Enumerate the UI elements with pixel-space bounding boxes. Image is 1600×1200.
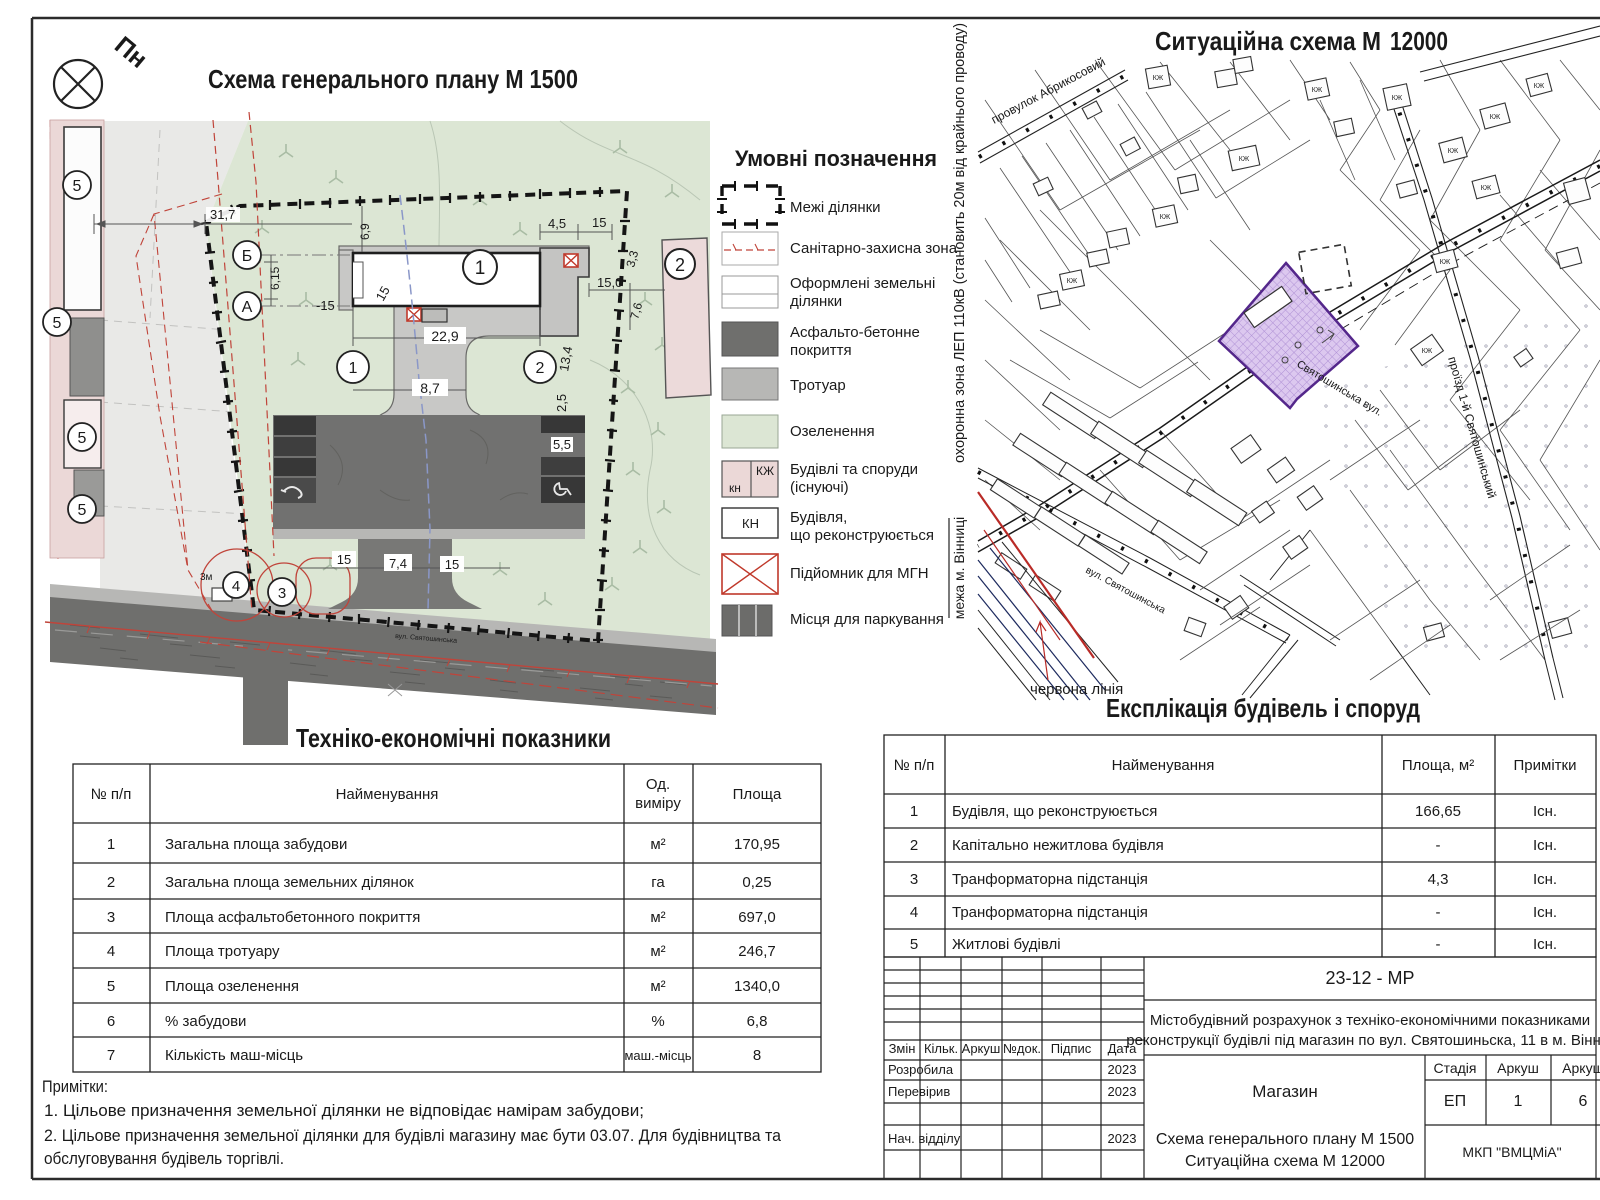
svg-text:8,7: 8,7 [420, 380, 440, 396]
svg-text:1: 1 [475, 258, 486, 279]
svg-text:що реконструюється: що реконструюється [790, 527, 934, 544]
svg-text:(існуючі): (існуючі) [790, 479, 849, 496]
svg-text:КЖ: КЖ [1422, 348, 1433, 355]
svg-text:Кільк.: Кільк. [924, 1041, 958, 1056]
svg-text:га: га [651, 874, 665, 891]
svg-text:22,9: 22,9 [431, 328, 458, 344]
svg-text:КЖ: КЖ [1160, 214, 1171, 221]
svg-text:Межі ділянки: Межі ділянки [790, 199, 881, 216]
svg-text:Будівля, що реконструюється: Будівля, що реконструюється [952, 803, 1157, 820]
svg-text:15: 15 [445, 557, 459, 572]
svg-text:м²: м² [650, 909, 665, 926]
svg-text:КЖ: КЖ [1448, 148, 1459, 155]
svg-text:-: - [1436, 837, 1441, 854]
svg-text:КЖ: КЖ [1440, 259, 1451, 266]
svg-text:маш.-місць: маш.-місць [624, 1048, 691, 1063]
svg-text:КЖ: КЖ [1067, 278, 1078, 285]
svg-text:Капітально нежитлова будівля: Капітально нежитлова будівля [952, 837, 1164, 854]
svg-text:6: 6 [1579, 1093, 1588, 1110]
svg-text:-: - [1436, 904, 1441, 921]
svg-text:5: 5 [53, 315, 62, 332]
svg-text:Од.: Од. [646, 776, 670, 793]
svg-text:№ п/п: № п/п [894, 757, 935, 774]
svg-text:% забудови: % забудови [165, 1013, 246, 1030]
svg-text:%: % [651, 1013, 664, 1030]
svg-text:Техніко-економічні показники: Техніко-економічні показники [296, 723, 611, 753]
svg-text:покриття: покриття [790, 342, 852, 359]
svg-text:15: 15 [337, 552, 351, 567]
svg-text:1. Цільове призначення земельн: 1. Цільове призначення земельної ділянки… [44, 1101, 644, 1120]
svg-text:м²: м² [650, 978, 665, 995]
svg-text:7: 7 [107, 1047, 115, 1064]
svg-text:межа м. Вінниці: межа м. Вінниці [951, 517, 967, 620]
svg-text:Будівля,: Будівля, [790, 509, 847, 526]
svg-text:170,95: 170,95 [734, 836, 780, 853]
svg-text:Аркуш: Аркуш [1562, 1060, 1600, 1076]
svg-text:Стадія: Стадія [1433, 1060, 1476, 1076]
svg-text:Загальна площа забудови: Загальна площа забудови [165, 836, 347, 853]
svg-text:м²: м² [650, 836, 665, 853]
svg-text:6,9: 6,9 [358, 223, 372, 240]
svg-text:Асфальто-бетонне: Асфальто-бетонне [790, 324, 920, 341]
svg-text:-15: -15 [316, 298, 335, 313]
svg-text:Примітки:: Примітки: [42, 1077, 108, 1096]
svg-text:КЖ: КЖ [1534, 83, 1545, 90]
svg-text:1340,0: 1340,0 [734, 978, 780, 995]
svg-text:м²: м² [650, 943, 665, 960]
svg-text:МКП "ВМЦМіА": МКП "ВМЦМіА" [1462, 1144, 1561, 1160]
svg-text:Транформаторна підстанція: Транформаторна підстанція [952, 871, 1148, 888]
svg-text:КЖ: КЖ [756, 464, 774, 478]
svg-text:КЖ: КЖ [1153, 75, 1164, 82]
svg-text:4: 4 [232, 578, 240, 595]
svg-text:2023: 2023 [1108, 1084, 1137, 1099]
svg-text:Розробила: Розробила [888, 1062, 954, 1077]
svg-text:Схема генерального плану М 150: Схема генерального плану М 1500 [208, 64, 578, 94]
svg-text:2: 2 [910, 837, 918, 854]
svg-text:КН: КН [742, 516, 759, 531]
svg-text:6,15: 6,15 [268, 266, 282, 290]
svg-text:0,25: 0,25 [742, 874, 771, 891]
svg-text:Оформлені земельні: Оформлені земельні [790, 275, 935, 292]
svg-text:6,8: 6,8 [747, 1013, 768, 1030]
svg-text:1: 1 [107, 836, 115, 853]
svg-text:Озеленення: Озеленення [790, 423, 875, 440]
svg-text:2,5: 2,5 [554, 394, 569, 412]
svg-text:охоронна зона ЛЕП 110кВ (стано: охоронна зона ЛЕП 110кВ (становить 20м в… [952, 23, 968, 463]
svg-text:Магазин: Магазин [1252, 1082, 1318, 1101]
svg-text:КЖ: КЖ [1312, 87, 1323, 94]
svg-text:обслуговування будівель торгів: обслуговування будівель торгівлі. [44, 1149, 284, 1168]
svg-text:№док.: №док. [1003, 1041, 1041, 1056]
svg-text:166,65: 166,65 [1415, 803, 1461, 820]
svg-text:2023: 2023 [1108, 1131, 1137, 1146]
svg-text:2: 2 [675, 255, 685, 275]
svg-text:Кількість маш-місць: Кількість маш-місць [165, 1047, 303, 1064]
svg-text:КЖ: КЖ [1392, 95, 1403, 102]
svg-text:Житлові будівлі: Житлові будівлі [952, 936, 1061, 953]
svg-text:Існ.: Існ. [1533, 871, 1557, 888]
svg-text:4,3: 4,3 [1428, 871, 1449, 888]
svg-text:А: А [242, 299, 253, 316]
svg-text:вул. Святошинська: вул. Святошинська [1084, 565, 1168, 617]
svg-text:2: 2 [107, 874, 115, 891]
svg-text:кн: кн [729, 481, 741, 495]
svg-text:8: 8 [753, 1047, 761, 1064]
svg-text:Умовні позначення: Умовні позначення [735, 146, 937, 171]
svg-text:31,7: 31,7 [210, 207, 235, 222]
svg-text:1: 1 [910, 803, 918, 820]
svg-text:4: 4 [910, 904, 918, 921]
svg-text:5: 5 [910, 936, 918, 953]
svg-text:1: 1 [1514, 1093, 1523, 1110]
svg-text:Місця для паркування: Місця для паркування [790, 611, 944, 628]
svg-text:2023: 2023 [1108, 1062, 1137, 1077]
svg-text:Аркуш: Аркуш [962, 1041, 1001, 1056]
svg-text:Загальна площа земельних ділян: Загальна площа земельних ділянок [165, 874, 414, 891]
svg-text:Тротуар: Тротуар [790, 377, 846, 394]
svg-text:Площа озеленення: Площа озеленення [165, 978, 299, 995]
svg-text:КЖ: КЖ [1239, 156, 1250, 163]
svg-text:3: 3 [107, 909, 115, 926]
svg-text:виміру: виміру [635, 795, 681, 812]
svg-text:Найменування: Найменування [336, 786, 439, 803]
svg-text:Б: Б [242, 248, 253, 265]
svg-text:7,4: 7,4 [389, 556, 407, 571]
svg-text:Підпис: Підпис [1051, 1041, 1092, 1056]
svg-text:Площа тротуару: Площа тротуару [165, 943, 280, 960]
svg-text:23-12 - МР: 23-12 - МР [1325, 968, 1414, 988]
svg-text:2. Цільове призначення земельн: 2. Цільове призначення земельної ділянки… [44, 1126, 782, 1145]
svg-text:Будівлі та споруди: Будівлі та споруди [790, 461, 918, 478]
svg-text:5: 5 [73, 178, 82, 195]
svg-text:Змін: Змін [889, 1041, 916, 1056]
svg-text:3: 3 [910, 871, 918, 888]
svg-text:6: 6 [107, 1013, 115, 1030]
svg-text:Площа: Площа [733, 786, 782, 803]
svg-text:ділянки: ділянки [790, 293, 842, 310]
svg-text:Схема генерального плану М 150: Схема генерального плану М 1500 [1156, 1131, 1414, 1148]
svg-text:Транформаторна підстанція: Транформаторна підстанція [952, 904, 1148, 921]
svg-text:Ситуаційна схема М: Ситуаційна схема М [1155, 26, 1381, 56]
svg-text:-: - [1436, 936, 1441, 953]
svg-text:Підйомник для МГН: Підйомник для МГН [790, 565, 929, 582]
svg-text:5,5: 5,5 [553, 437, 571, 452]
svg-text:Площа асфальтобетонного покрит: Площа асфальтобетонного покриття [165, 909, 420, 926]
svg-text:5: 5 [107, 978, 115, 995]
svg-text:Нач. відділу: Нач. відділу [888, 1131, 961, 1146]
svg-text:3: 3 [278, 585, 286, 602]
svg-text:Площа, м²: Площа, м² [1402, 757, 1474, 774]
svg-text:Ситуаційна схема М 12000: Ситуаційна схема М 12000 [1185, 1153, 1385, 1170]
svg-text:15,0: 15,0 [597, 275, 622, 290]
svg-text:Найменування: Найменування [1112, 757, 1215, 774]
svg-text:Пн: Пн [109, 31, 152, 74]
svg-text:Містобудівний розрахунок з тех: Містобудівний розрахунок з техніко-еконо… [1150, 1012, 1590, 1029]
svg-text:4: 4 [107, 943, 115, 960]
svg-text:Перевірив: Перевірив [888, 1084, 950, 1099]
svg-text:Примітки: Примітки [1514, 757, 1577, 774]
svg-text:1: 1 [349, 360, 358, 377]
svg-text:2: 2 [536, 360, 545, 377]
svg-text:Аркуш: Аркуш [1497, 1060, 1539, 1076]
svg-text:реконструкції будівлі під мага: реконструкції будівлі під магазин по вул… [1126, 1032, 1600, 1049]
svg-text:КЖ: КЖ [1490, 114, 1501, 121]
svg-text:246,7: 246,7 [738, 943, 776, 960]
svg-text:12000: 12000 [1390, 26, 1448, 56]
svg-text:Існ.: Існ. [1533, 837, 1557, 854]
svg-text:ЕП: ЕП [1444, 1093, 1466, 1110]
svg-text:15: 15 [592, 215, 606, 230]
svg-text:4,5: 4,5 [548, 216, 566, 231]
svg-text:Існ.: Існ. [1533, 803, 1557, 820]
svg-text:Існ.: Існ. [1533, 936, 1557, 953]
svg-text:5: 5 [78, 430, 87, 447]
svg-text:Санітарно-захисна зона: Санітарно-захисна зона [790, 240, 958, 257]
svg-text:Існ.: Існ. [1533, 904, 1557, 921]
svg-text:Експлікація будівель і споруд: Експлікація будівель і споруд [1106, 693, 1420, 723]
svg-text:5: 5 [78, 502, 87, 519]
svg-text:3м: 3м [200, 572, 213, 583]
svg-text:№ п/п: № п/п [91, 786, 132, 803]
svg-text:КЖ: КЖ [1481, 185, 1492, 192]
svg-text:697,0: 697,0 [738, 909, 776, 926]
